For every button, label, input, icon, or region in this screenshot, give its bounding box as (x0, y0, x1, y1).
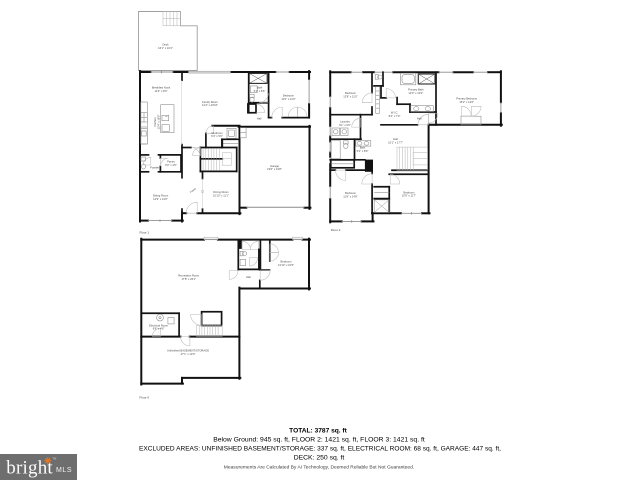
svg-text:Sitting Room: Sitting Room (153, 194, 169, 198)
svg-text:17'8" x 26'1": 17'8" x 26'1" (181, 277, 196, 281)
svg-text:Bedroom: Bedroom (345, 191, 357, 195)
svg-text:14'4" x 23'10": 14'4" x 23'10" (202, 103, 218, 107)
svg-text:Unfinished BASEMENT/STORAGE: Unfinished BASEMENT/STORAGE (167, 349, 209, 353)
svg-text:Powder: Powder (150, 166, 159, 170)
svg-text:27'1" x 13'0": 27'1" x 13'0" (181, 352, 196, 356)
svg-text:Pantry: Pantry (167, 160, 175, 164)
svg-text:12'4" x 16'0": 12'4" x 16'0" (156, 115, 160, 130)
svg-text:Bedroom: Bedroom (281, 260, 293, 264)
svg-text:10'1" x 17'7": 10'1" x 17'7" (388, 140, 403, 144)
svg-text:6'4" x 5'0": 6'4" x 5'0" (211, 134, 223, 138)
svg-text:Hall: Hall (393, 137, 398, 141)
svg-text:Bedroom: Bedroom (404, 190, 416, 194)
svg-text:Family Room: Family Room (202, 100, 219, 104)
svg-text:19'6" x 19'8": 19'6" x 19'8" (267, 167, 282, 171)
svg-text:DECK: 250 sq. ft: DECK: 250 sq. ft (294, 454, 345, 461)
svg-text:6'0" x 4'5": 6'0" x 4'5" (165, 163, 177, 167)
svg-text:Bath: Bath (360, 146, 366, 150)
svg-text:12'9" x 13'0": 12'9" x 13'0" (153, 197, 168, 201)
svg-text:5'1" x 8'6": 5'1" x 8'6" (254, 89, 266, 93)
svg-text:Bedroom: Bedroom (345, 91, 357, 95)
svg-text:TOTAL: 3787 sq. ft: TOTAL: 3787 sq. ft (289, 427, 347, 434)
svg-text:11'8" x 14'8": 11'8" x 14'8" (343, 195, 358, 199)
svg-text:Electrical Room: Electrical Room (149, 323, 169, 327)
svg-text:Below Ground: 945 sq. ft, FLOO: Below Ground: 945 sq. ft, FLOOR 2: 1421 … (213, 436, 425, 443)
svg-text:Kitchen: Kitchen (153, 117, 157, 126)
svg-text:Bath: Bath (257, 85, 263, 89)
svg-text:EXCLUDED AREAS: UNFINISHED BAS: EXCLUDED AREAS: UNFINISHED BASEMENT/STOR… (139, 446, 501, 453)
svg-text:MLS: MLS (56, 467, 72, 474)
svg-text:10'9" x 11'7": 10'9" x 11'7" (402, 194, 417, 198)
svg-text:Floor 2: Floor 2 (331, 228, 341, 232)
svg-text:Bedroom: Bedroom (283, 94, 295, 98)
svg-text:15'2" x 13'0": 15'2" x 13'0" (459, 100, 474, 104)
svg-text:Garage: Garage (270, 164, 279, 168)
svg-text:6'1" x 6'0": 6'1" x 6'0" (339, 123, 351, 127)
svg-text:Primary Bath: Primary Bath (408, 88, 424, 92)
svg-text:Floor 0: Floor 0 (139, 396, 149, 400)
svg-text:6'6" x 4'6": 6'6" x 4'6" (153, 327, 165, 331)
svg-text:Hall: Hall (246, 275, 251, 279)
svg-text:Recreation Room: Recreation Room (178, 273, 200, 277)
svg-text:5'4" x 8'9": 5'4" x 8'9" (357, 149, 369, 153)
svg-text:Floor 1: Floor 1 (140, 230, 150, 234)
svg-text:Hall: Hall (257, 116, 262, 120)
svg-text:16'1" x 16'4": 16'1" x 16'4" (158, 46, 173, 50)
svg-text:Measurements Are Calculated By: Measurements Are Calculated By AI Techno… (224, 464, 414, 470)
svg-text:Hall: Hall (417, 117, 422, 121)
svg-text:Deck: Deck (162, 43, 169, 47)
svg-text:Primary Bedroom: Primary Bedroom (456, 97, 478, 101)
svg-text:10'10" x 11'1": 10'10" x 11'1" (213, 194, 229, 198)
svg-text:12'0" x 10'0": 12'0" x 10'0" (408, 91, 423, 95)
svg-text:8'4" x 7'0": 8'4" x 7'0" (389, 114, 401, 118)
svg-text:Dining Room: Dining Room (213, 190, 229, 194)
svg-text:W.I.C.: W.I.C. (391, 111, 399, 115)
svg-text:TM: TM (53, 457, 57, 461)
svg-text:Breakfast Nook: Breakfast Nook (152, 86, 171, 90)
svg-text:11'0" x 11'0": 11'0" x 11'0" (281, 97, 295, 101)
svg-text:Laundry: Laundry (340, 120, 350, 124)
svg-text:11'6" x 8'0": 11'6" x 8'0" (154, 89, 167, 93)
svg-text:13'8" x 11'0": 13'8" x 11'0" (343, 94, 358, 98)
svg-text:13'10" x 10'5": 13'10" x 10'5" (278, 263, 294, 267)
